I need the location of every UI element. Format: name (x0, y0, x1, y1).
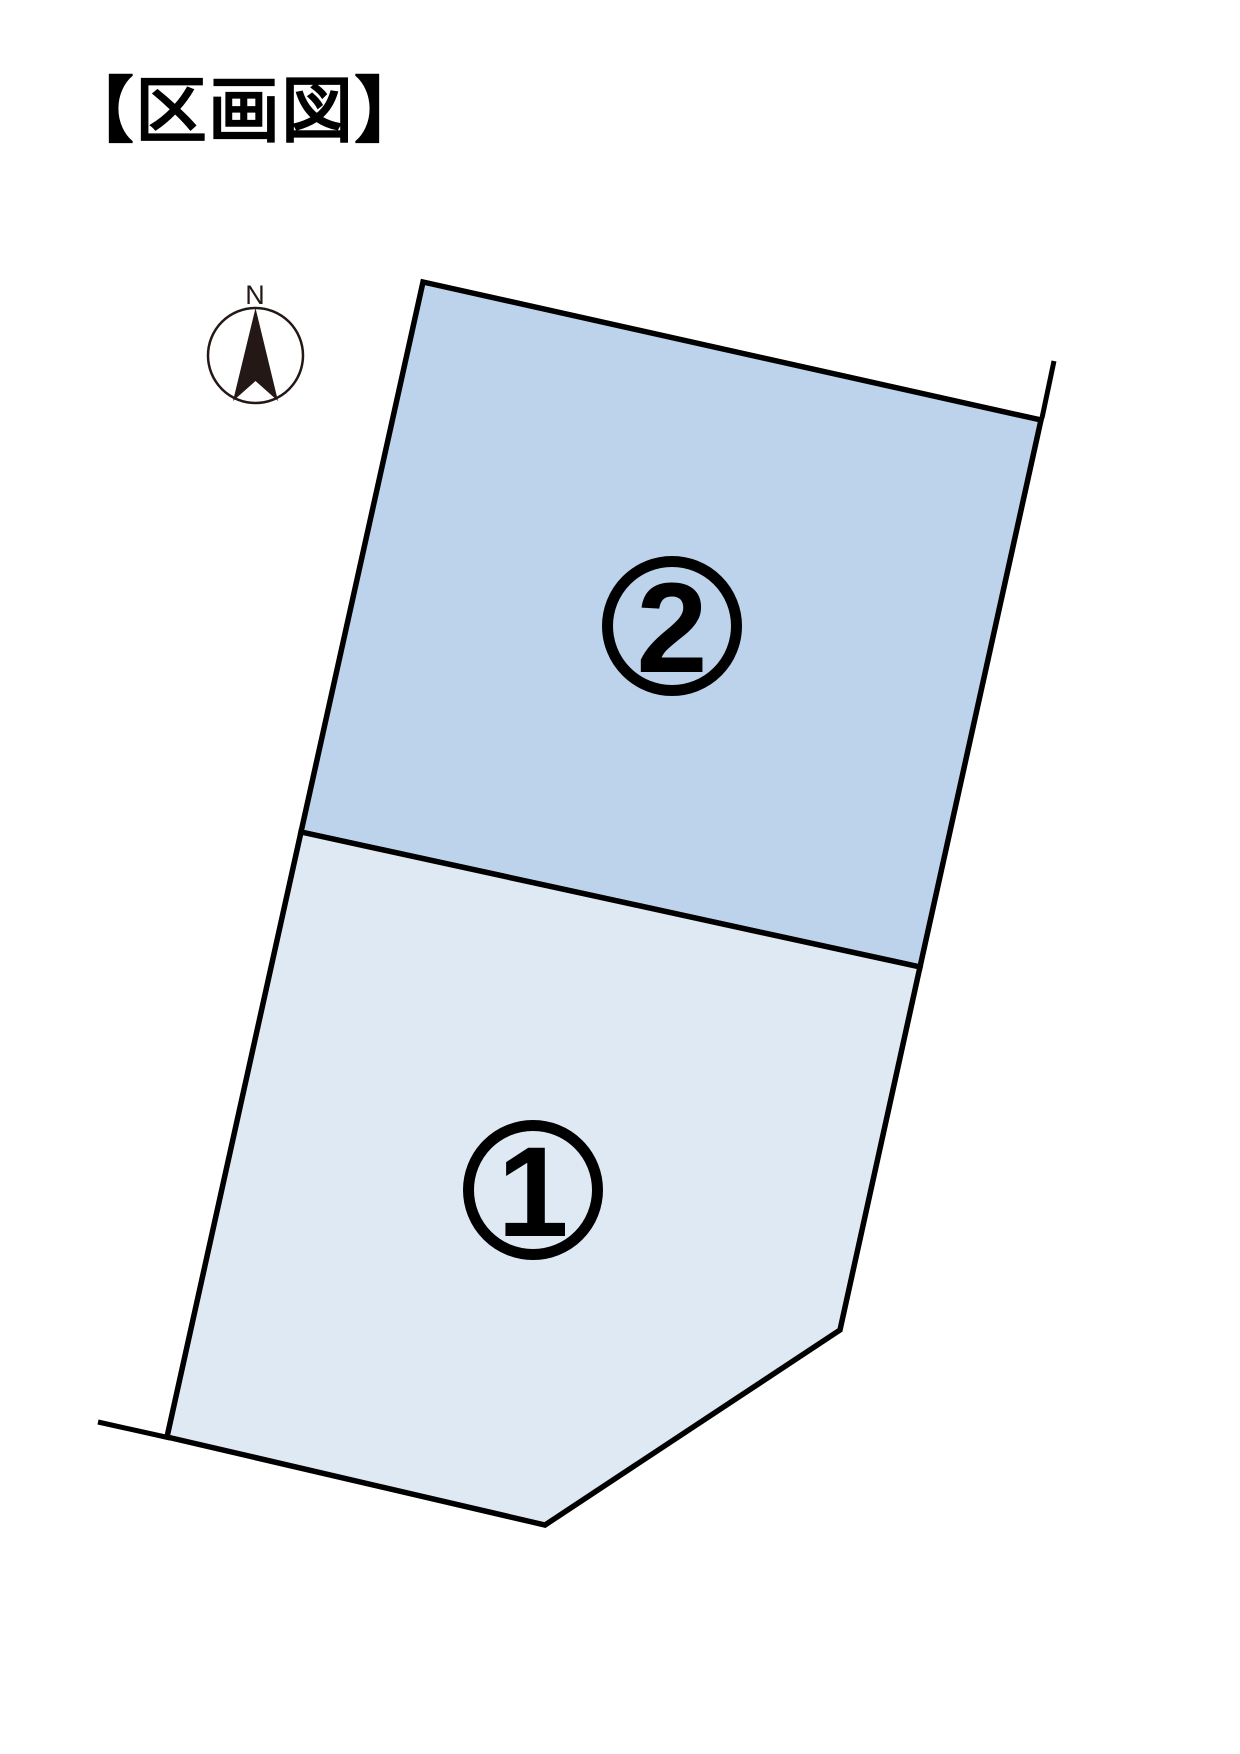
plot-map-diagram: 2 1 N (0, 0, 1240, 1754)
compass-north-label: N (245, 280, 265, 310)
parcel-regions (167, 282, 1041, 1525)
plot-1-label-number: 1 (497, 1121, 568, 1264)
road-line-bottom-left (98, 1422, 170, 1438)
plot-map-page: 【区画図】 2 1 N (0, 0, 1240, 1754)
boundary-extension-top-right (1042, 361, 1054, 418)
plot-2-label-number: 2 (636, 557, 707, 700)
compass: N (208, 280, 303, 403)
